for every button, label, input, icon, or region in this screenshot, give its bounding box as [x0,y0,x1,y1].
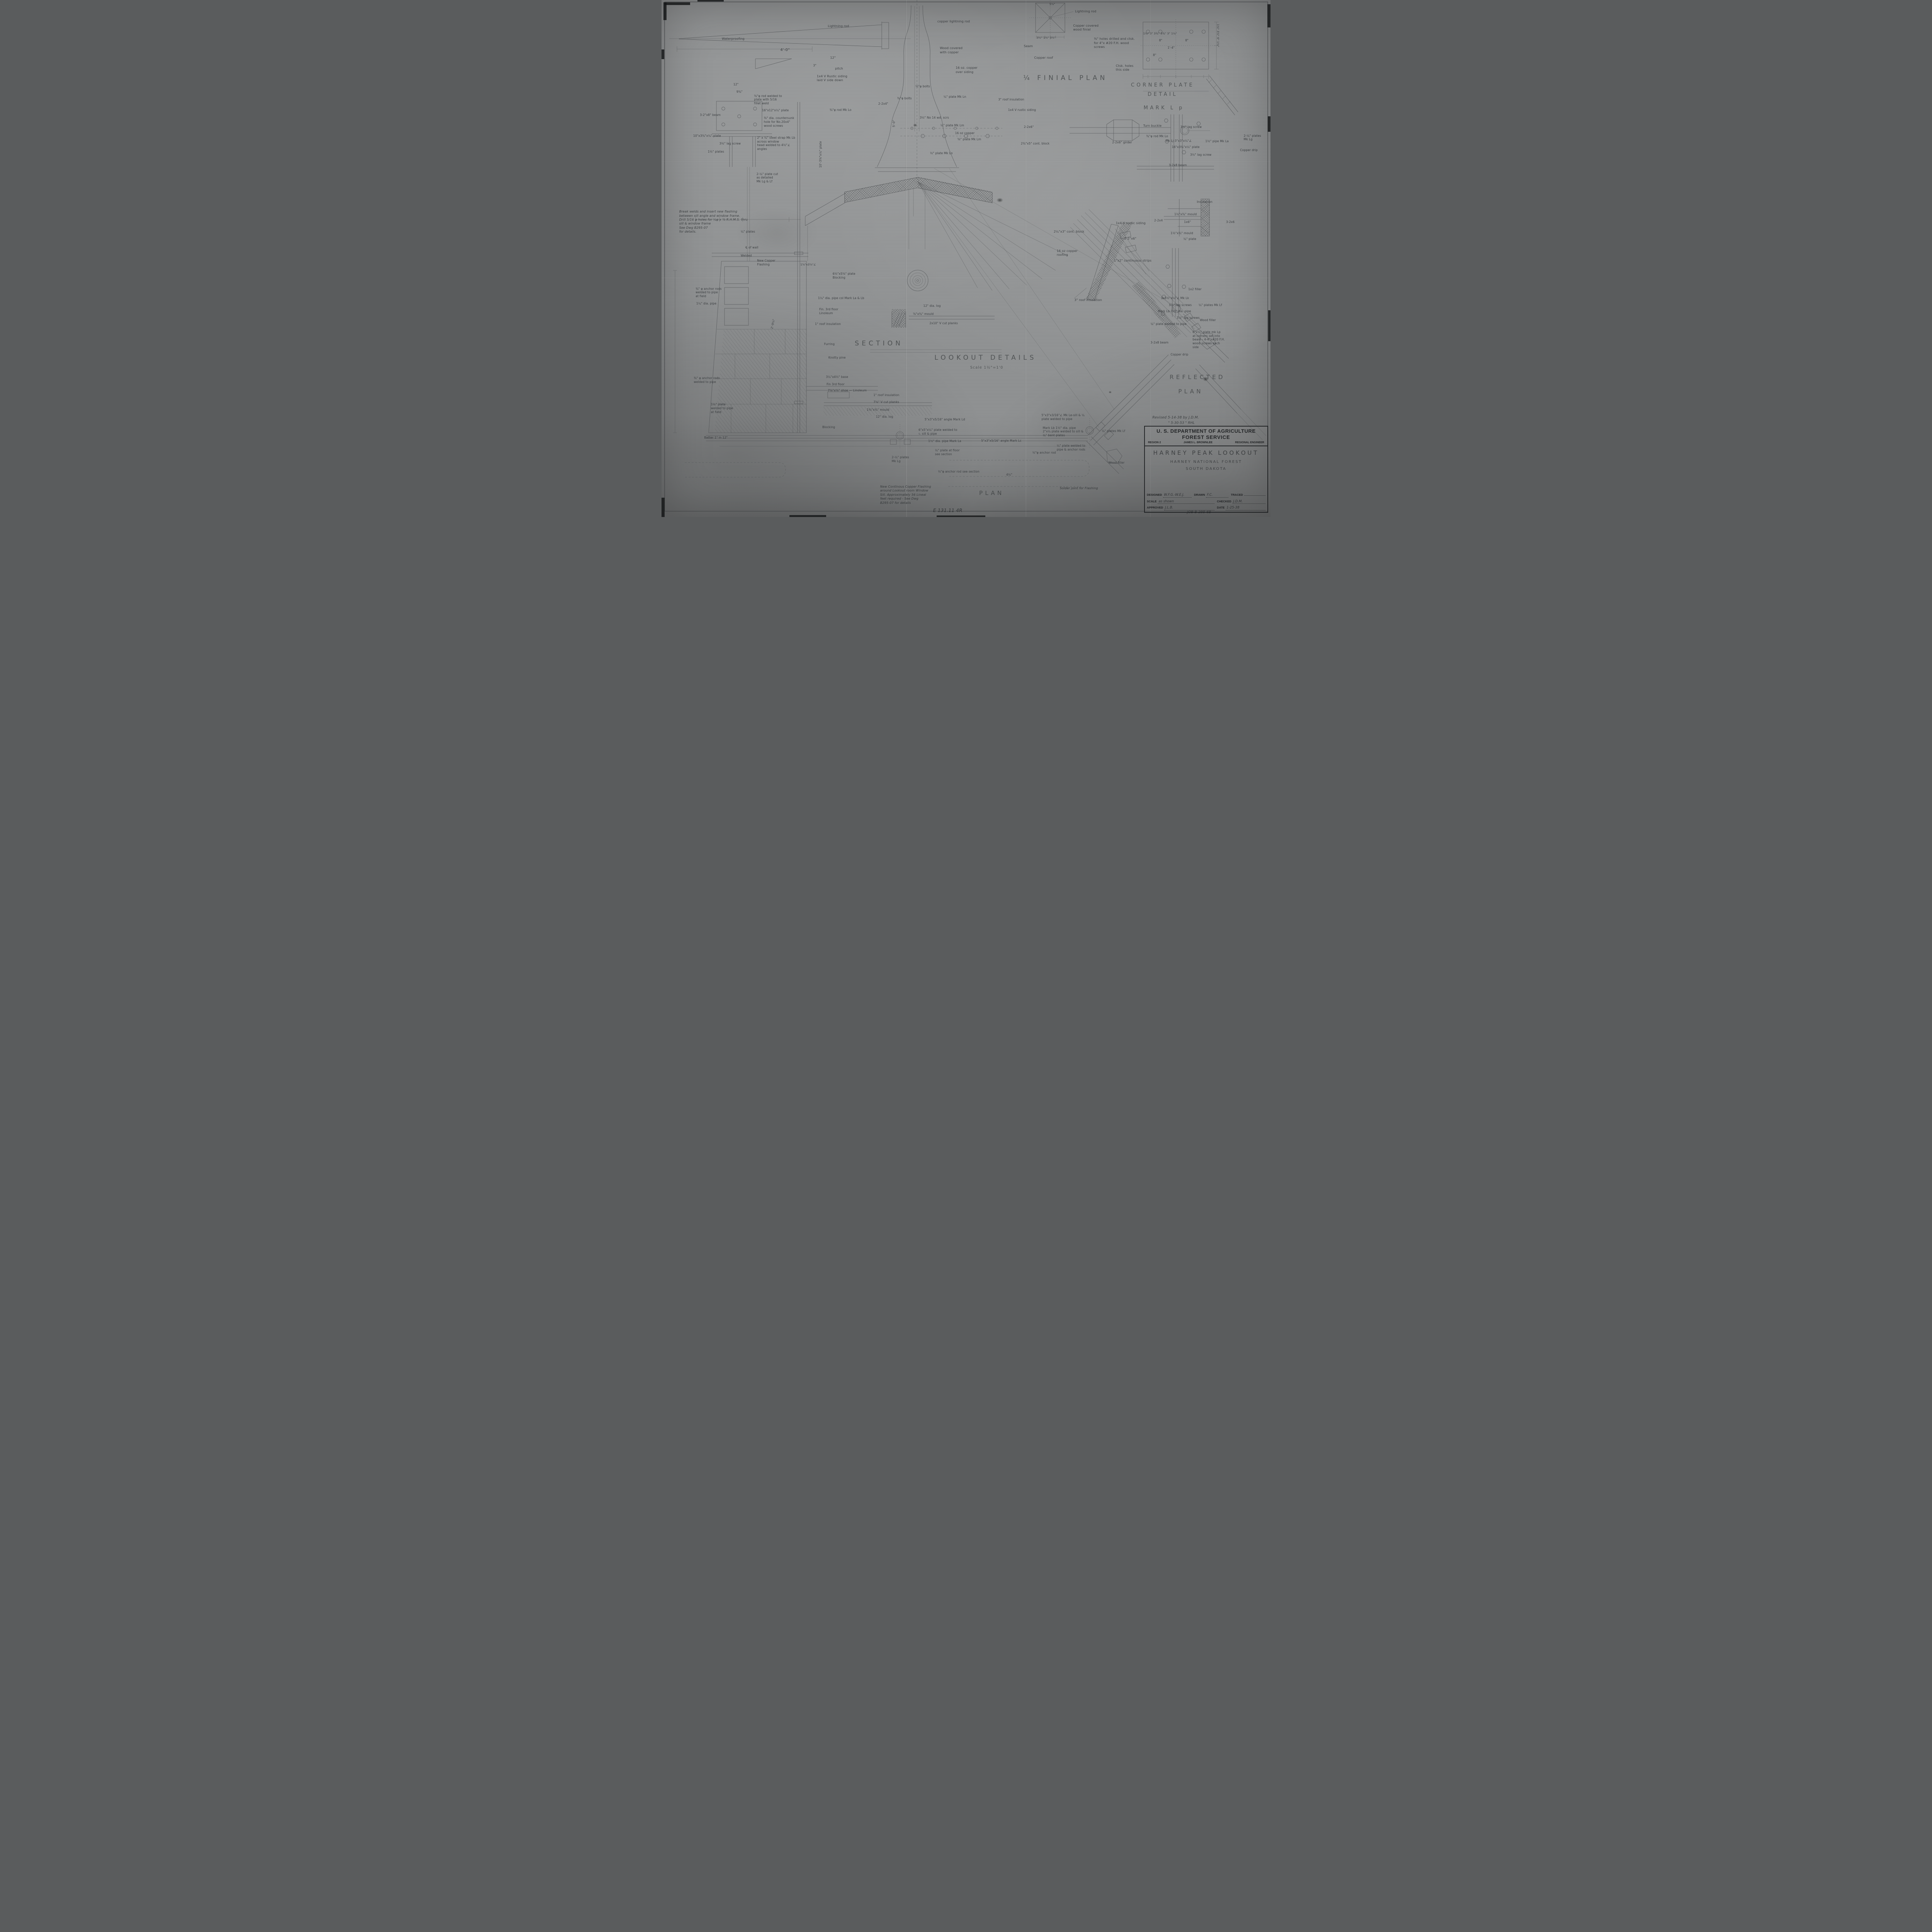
annotation-label: 1½" dia. pipe Mark La [928,439,961,443]
annotation-label: 3½" lag screws [1177,316,1199,320]
annotation-label: 5⅛" [1049,3,1055,6]
annotation-label: 3-2"x8" beam [700,113,721,117]
scale-value: as shown [1158,500,1214,504]
title-block-fields: DESIGNED W.F.G.-W.E.J. DRAWN F.C. TRACED… [1145,491,1267,512]
annotation-label: Mark Lb-1½" dia. pipe [1158,310,1191,313]
annotation-label: ¼" plate welded to pipe [1151,322,1187,326]
annotation-label: Knotty pine [828,356,846,360]
annotation-label: 1" roof insulation [815,322,841,326]
annotation-label: 10"x3¾"x¼" plate [693,134,721,138]
annotation-label: Turn buckle [1143,124,1162,128]
view-title: REFLECTED [1170,374,1225,381]
drawn-value: F.C. [1206,493,1228,498]
annotation-label: Lightning rod [828,24,849,28]
annotation-label: 3½" lag screw [1190,153,1211,157]
annotation-label: ⅝"φ rod welded to plate with 5/16 fillet… [754,94,782,105]
annotation-label: Furring [824,342,835,346]
annotation-label: New Copper Flashing [757,259,775,267]
annotation-label: 1¼" dia. pipe col Mark La & Lb [818,296,864,300]
annotation-label: 16 oz copper roofing [1057,249,1078,257]
agency-name: U. S. DEPARTMENT OF AGRICULTURE [1146,429,1266,434]
annotation-label: Mk Lj-3"x3"x¼"∠ [1166,139,1192,143]
checked-label: CHECKED [1217,500,1231,503]
view-title: MARK L p [1144,105,1184,112]
annotation-label: 5'-0" [892,120,896,128]
annotation-label: Copper roof [1034,56,1053,60]
annotation-label: ½"φ anchor rod [1032,451,1056,455]
drawing-sheet: ¼ FINIAL PLANCORNER PLATEDETAILMARK L pS… [662,0,1270,517]
project-title: HARNEY PEAK LOOKOUT [1145,449,1267,456]
annotation-label: Wood covered with copper [940,46,963,54]
annotation-label: 1'-4" [1168,46,1175,50]
annotation-label: 3½" 1½" 3½" [1037,36,1056,40]
annotation-label: 5"x3"x5/16" angle Mark Lc [981,439,1021,443]
annotation-label: 7⅝" V cut planks [873,400,899,404]
annotation-label: 4½" [1006,473,1012,477]
title-block-header: U. S. DEPARTMENT OF AGRICULTURE FOREST S… [1145,427,1267,446]
annotation-label: 3½" lag screws [1169,303,1192,307]
annotation-label: Ctsk. holes this side [1116,64,1134,72]
annotation-label: 6½"x5⅝" plate Blocking [833,272,855,280]
title-block: U. S. DEPARTMENT OF AGRICULTURE FOREST S… [1144,426,1268,513]
annotation-label: 1x4 V rustic siding [1116,221,1146,225]
annotation-label: ⅝"x¾" mould [913,312,934,316]
annotation-label: Copper drip [1171,353,1189,357]
annotation-label: 3x3½"x¼"∠ Mk Lk [1161,296,1189,300]
annotation-label: 2¾"x5" cont. block [1021,142,1049,146]
annotation-label: ¼" plates [741,230,755,234]
annotation-label: 16 oz. copper over siding [956,66,978,74]
annotation-label: E 131.11 4R [933,508,963,514]
annotation-label: 2-2x6" [1024,125,1034,129]
annotation-label: 4'-0" [780,48,790,53]
annotation-label: Waterproofing [722,37,745,41]
annotation-label: 3½" lag screw [719,142,741,146]
annotation-label: 12" [830,56,836,60]
annotation-label: 1¼" dia. pipe [696,302,716,306]
annotation-label: 1½"x¾" mould [1174,213,1197,216]
annotation-label: Fin 3rd floor [827,383,845,386]
annotation-label: 1¼" 3½" 6" 1¼" [1216,24,1219,47]
annotation-label: Wood filler [1109,461,1125,465]
annotation-label: 5"x3"x3/16"∠ Mk Le-sill & ¼ plate welded… [1041,413,1084,421]
date-label: DATE [1217,506,1225,509]
annotation-label: ¼" plate at floor see section [935,449,960,456]
annotation-label: 6"x¼" plate mk Lp at corners set into be… [1192,330,1225,349]
annotation-label: 1½"x¾" mould [1171,231,1193,235]
annotation-label: 2-2x4" [878,102,888,106]
annotation-label: 3" [813,64,816,68]
annotation-label: 3-2x8 beam [1169,163,1187,167]
annotation-label: 16"x3¾"x¼" plate [1172,145,1200,149]
annotation-label: ¼" plate Mk Ln [944,95,966,99]
annotation-label: 3¼"x4½" base [826,375,848,379]
annotation-label: 2¼"x3" cont. block [1054,230,1084,234]
annotation-label: Mark Lb 1½" dia. pipe 2"x¼ plate welded … [1043,426,1083,437]
annotation-label: ¼" plates Mk Lf [1199,303,1222,307]
traced-label: TRACED [1231,493,1243,497]
annotation-label: ⅜" holes drilled and ctsk. for 4"x #20 F… [1094,37,1135,49]
annotation-label: Insulation [1197,200,1213,204]
annotation-label: 16"x12"x¼" plate [762,109,789,112]
annotation-label: 3½" No 14 wd. scrs [920,116,949,120]
designed-value: W.F.G.-W.E.J. [1163,493,1192,498]
annotation-label: 2-2x6" girder [1112,141,1132,145]
annotation-label: 2-2x4 [1154,219,1163,223]
annotation-label: 2-¼" plates Mk Lg [1244,134,1261,142]
annotation-label: 16 oz copper [955,131,975,135]
annotation-label: 3-2x8 beam [1151,341,1169,345]
view-title: DETAIL [1148,92,1178,98]
annotation-label: Scale 1½"=1'0 [970,366,1003,370]
annotation-label: 1x2 filler [1188,287,1201,291]
designed-label: DESIGNED [1147,493,1162,497]
annotation-label: 3" roof insulation [1075,298,1102,302]
annotation-label: 6"x5"x¼" plate welded to ∟ sill & pipe [918,428,957,436]
annotation-label: 8" [1153,53,1156,57]
annotation-label: ¼" plates Mk Lf [1102,429,1125,433]
annotation-label: ⅜" dia. countersunk hole for No.20x4" wo… [764,116,794,128]
annotation-label: 1x4 V rustic siding [1008,108,1036,112]
approved-value: J.L.B. [1164,506,1214,510]
region-label: REGION 2 [1148,441,1161,444]
annotation-label: Break welds and insert new flashing betw… [679,210,748,234]
annotation-label: Blocking [822,425,835,429]
annotation-label: Lightning rod [1075,10,1096,14]
annotation-label: Wood filler [1200,318,1216,322]
annotation-label: ½" plate Mk Ln [930,151,953,155]
annotation-label: New Continous Copper Flashing around Loo… [880,485,931,505]
annotation-label: Revised 5-14-38 by J.D.M. [1152,416,1199,420]
annotation-label: 1"x2" continuous strips [1114,259,1151,263]
annotation-label: 1½" plates [708,150,724,154]
engineer-name: JAMES L. BROWNLEE [1184,441,1213,444]
annotation-label: 8" [1159,39,1163,43]
annotation-label: Copper drip [1240,148,1258,152]
annotation-label: ¼" plate [1184,237,1196,241]
view-title: SECTION [855,339,903,348]
annotation-label: ¾"φ rod Mk Lo [830,108,852,112]
traced-value [1244,495,1265,496]
annotation-label: 9¾" [736,90,743,94]
annotation-label: 12" [733,83,738,87]
annotation-label: ½"φ anchor rod see section [938,470,980,474]
annotation-label: 12" dia. log [923,304,941,308]
annotation-label: 2-2"x6" [1124,237,1136,241]
annotation-label: 1¼" 3" 3¾" 3¾" 3" 1¼" [1143,32,1177,36]
date-value: 1-25-38 [1226,506,1265,510]
annotation-label: ℄ of wall [745,246,758,250]
view-title: PLAN [979,490,1004,497]
annotation-label: ⅝" plate Mk Lm [957,138,981,141]
annotation-label: 2x10" V cut planks [929,321,957,325]
view-title: ¼ FINIAL PLAN [1023,74,1107,82]
annotation-label: ¼" plate Mk Lm [940,124,964,128]
annotation-label: ¾" φ anchor rods welded to pipe at field [696,287,721,298]
annotation-label: 2'-9¼" [770,318,776,329]
annotation-label: pitch [835,67,843,71]
annotation-label: 1½" pipe Mk La [1205,139,1229,143]
annotation-label: 1x4 V Rustic siding laid V side down [817,75,847,83]
annotation-label: 1¾"x¾" mould [867,408,889,412]
annotation-label: 7⅝"x⅝" shoe — Linoleum [828,389,867,393]
annotation-label: ½"φ bolts [915,85,930,88]
annotation-label: 2-¼" plate cut as detailed Mk Lg & Lf [757,172,778,184]
annotation-label: Fin. 3rd floor Linoleum [819,308,838,315]
annotation-label: Solder joint for Flashing [1060,486,1098,490]
approved-label: APPROVED [1147,506,1163,509]
view-title: PLAN [1178,388,1203,396]
annotation-label: 2" x ¼" steel strap Mk Lb across window … [757,136,795,151]
annotation-label: 1" roof insulation [873,393,899,397]
annotation-label: 3-2x6 [1226,220,1235,224]
annotation-label: Seam [1024,44,1033,48]
state-name: SOUTH DAKOTA [1145,466,1267,472]
annotation-label: ¾"φ bolts [897,97,912,100]
drawn-label: DRAWN [1194,493,1205,497]
service-name: FOREST SERVICE [1146,434,1266,440]
annotation-label: 10'-3⅝"x¼" plate [819,141,823,168]
view-title: LOOKOUT DETAILS [934,354,1036,362]
annotation-label: 3" roof insulation [998,98,1024,102]
view-title: CORNER PLATE [1131,82,1194,89]
annotation-label: 1x6" [1184,220,1191,224]
forest-name: HARNEY NATIONAL FOREST [1145,459,1267,465]
annotation-label: ¾" φ anchor rods welded to pipe [694,376,720,384]
annotation-label: 2-¼" plates Mk Lg [892,456,909,463]
annotation-label: " 5-30-53 " RHL [1168,421,1195,425]
annotation-label: Copper covered wood finial [1073,24,1099,32]
engineer-title: REGIONAL ENGINEER [1235,441,1264,444]
annotation-label: 1⅝"x3⅝"∠ [800,263,816,267]
annotation-label: 5"x3"x5/16" angle Mark Ld [925,418,965,422]
annotation-label: ¼" plate welded to pipe & anchor rods [1057,444,1085,452]
annotation-label: ¾"φ rod Mk Lo [1146,134,1168,138]
annotation-label: copper lightning rod [937,20,970,24]
annotation-label: 1¼" plate welded to pipe at field [711,403,733,414]
scale-label: SCALE [1147,500,1156,503]
annotation-label: 3½" lag screw [1180,125,1202,129]
annotation-label: 8" [1185,39,1189,43]
annotation-label: 12" dia. log [876,415,893,419]
annotation-label: Batter 1" in 12" [704,436,728,440]
annotation-label: Welded [741,254,752,258]
checked-value: J.D.M. [1233,500,1265,504]
